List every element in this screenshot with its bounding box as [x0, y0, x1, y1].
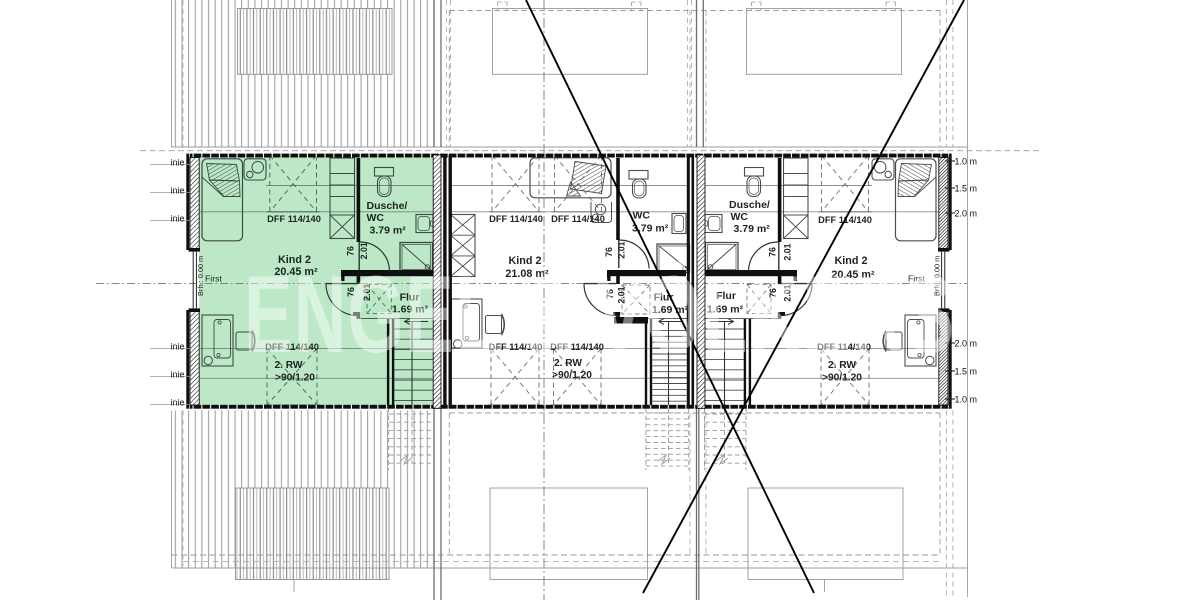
svg-text:First: First [205, 274, 222, 284]
svg-text:1.5 m: 1.5 m [955, 367, 978, 377]
svg-text:Dusche/: Dusche/ [729, 199, 770, 211]
svg-text:2.0 m: 2.0 m [955, 209, 978, 219]
svg-text:1.0 m: 1.0 m [955, 157, 978, 167]
svg-text:WC: WC [731, 211, 749, 223]
svg-text:DFF 114/140: DFF 114/140 [551, 214, 605, 224]
svg-text:3.79 m²: 3.79 m² [734, 223, 771, 235]
svg-text:WC: WC [633, 210, 651, 222]
svg-text:inie: inie [170, 342, 184, 352]
svg-text:inie: inie [170, 214, 184, 224]
svg-text:inie: inie [170, 186, 184, 196]
svg-text:DFF 114/140: DFF 114/140 [489, 214, 543, 224]
svg-text:3.79 m²: 3.79 m² [370, 225, 407, 237]
svg-text:ENGEL & VÖLKERS: ENGEL & VÖLKERS [244, 253, 955, 375]
svg-text:DFF 114/140: DFF 114/140 [267, 214, 321, 224]
svg-text:1.0 m: 1.0 m [955, 395, 978, 405]
svg-text:WC: WC [367, 212, 385, 224]
svg-text:inie: inie [170, 398, 184, 408]
svg-text:inie: inie [170, 158, 184, 168]
svg-text:inie: inie [170, 370, 184, 380]
svg-text:2.0 m: 2.0 m [955, 339, 978, 349]
svg-text:Brh.: 0.00 m: Brh.: 0.00 m [196, 256, 205, 296]
svg-text:Dusche/: Dusche/ [367, 200, 408, 212]
svg-text:1.5 m: 1.5 m [955, 184, 978, 194]
